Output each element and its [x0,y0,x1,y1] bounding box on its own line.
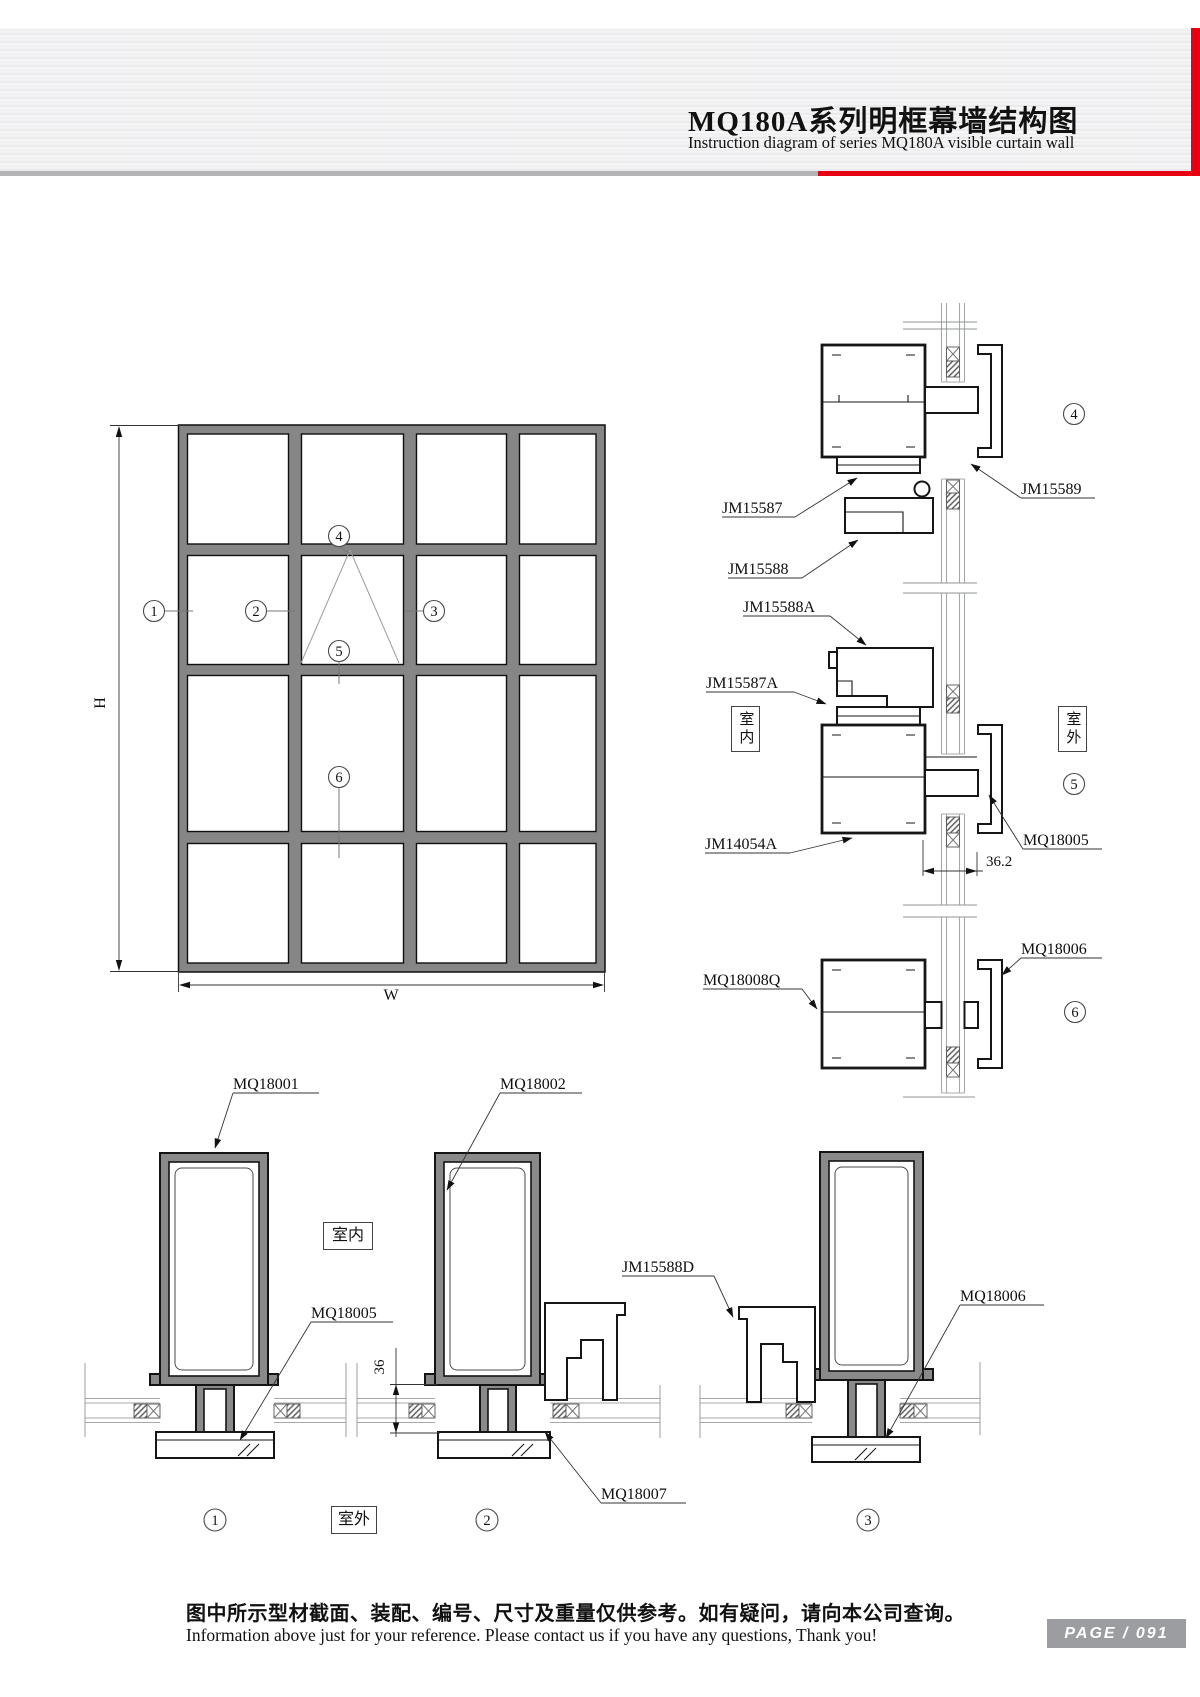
width-dimension: W [179,973,605,1004]
label-mq18005-bottom: MQ18005 [311,1305,377,1322]
plan-callout-1: 1 [211,1513,218,1529]
label-jm15588a: JM15588A [743,599,815,616]
callout-3: 3 [430,604,437,620]
footer-note-zh: 图中所示型材截面、装配、编号、尺寸及重量仅供参考。如有疑问，请向本公司查询。 [186,1597,965,1626]
label-jm15587a: JM15587A [706,675,778,692]
technical-drawing: H W 1 2 3 [0,0,1200,1697]
outdoor-box-bottom: 室外 [331,1506,377,1534]
detail-4-section [822,345,1002,533]
label-mq18002: MQ18002 [500,1076,566,1093]
detail-5-section: 36.2 [822,648,1012,876]
callout-1: 1 [150,604,157,620]
indoor-box-bottom: 室内 [323,1222,373,1250]
label-mq18001: MQ18001 [233,1076,299,1093]
label-mq18007: MQ18007 [601,1486,667,1503]
detail-callout-6: 6 [1071,1005,1078,1021]
callout-5: 5 [335,644,342,660]
label-jm15589: JM15589 [1021,481,1081,498]
h-dim-label: H [92,697,109,709]
callout-4: 4 [335,529,343,545]
outdoor-box-right: 室外 [1058,706,1087,752]
plan-callout-3: 3 [864,1513,871,1529]
label-mq18005-right: MQ18005 [1023,832,1089,849]
callout-2: 2 [252,604,259,620]
label-mq18008q: MQ18008Q [703,972,781,989]
indoor-box-right: 室内 [731,706,760,752]
callout-6: 6 [335,770,342,786]
label-jm15588: JM15588 [728,561,788,578]
footer-note-en: Information above just for your referenc… [186,1625,877,1646]
catalog-page: MQ180A系列明框幕墙结构图 Instruction diagram of s… [0,0,1200,1697]
detail-6-section [822,960,1002,1068]
elevation-grid: H W 1 2 3 [92,425,605,1004]
label-mq18006-bottom: MQ18006 [960,1288,1026,1305]
dim-36-2: 36.2 [923,840,1012,876]
dim-36: 36 [372,1348,440,1437]
label-mq18006-right: MQ18006 [1021,941,1087,958]
page-number-badge: PAGE / 091 [1047,1619,1186,1648]
dim-36-2-label: 36.2 [986,854,1012,870]
w-dim-label: W [383,987,399,1004]
detail-callout-5: 5 [1070,777,1077,793]
plan-section-1 [150,1153,278,1458]
height-dimension: H [92,426,180,972]
detail-callout-4: 4 [1070,407,1078,423]
label-jm15588d: JM15588D [622,1259,694,1276]
label-jm14054a: JM14054A [705,836,777,853]
plan-callout-2: 2 [483,1513,490,1529]
label-jm15587: JM15587 [722,500,782,517]
dim-36-label: 36 [372,1359,388,1375]
